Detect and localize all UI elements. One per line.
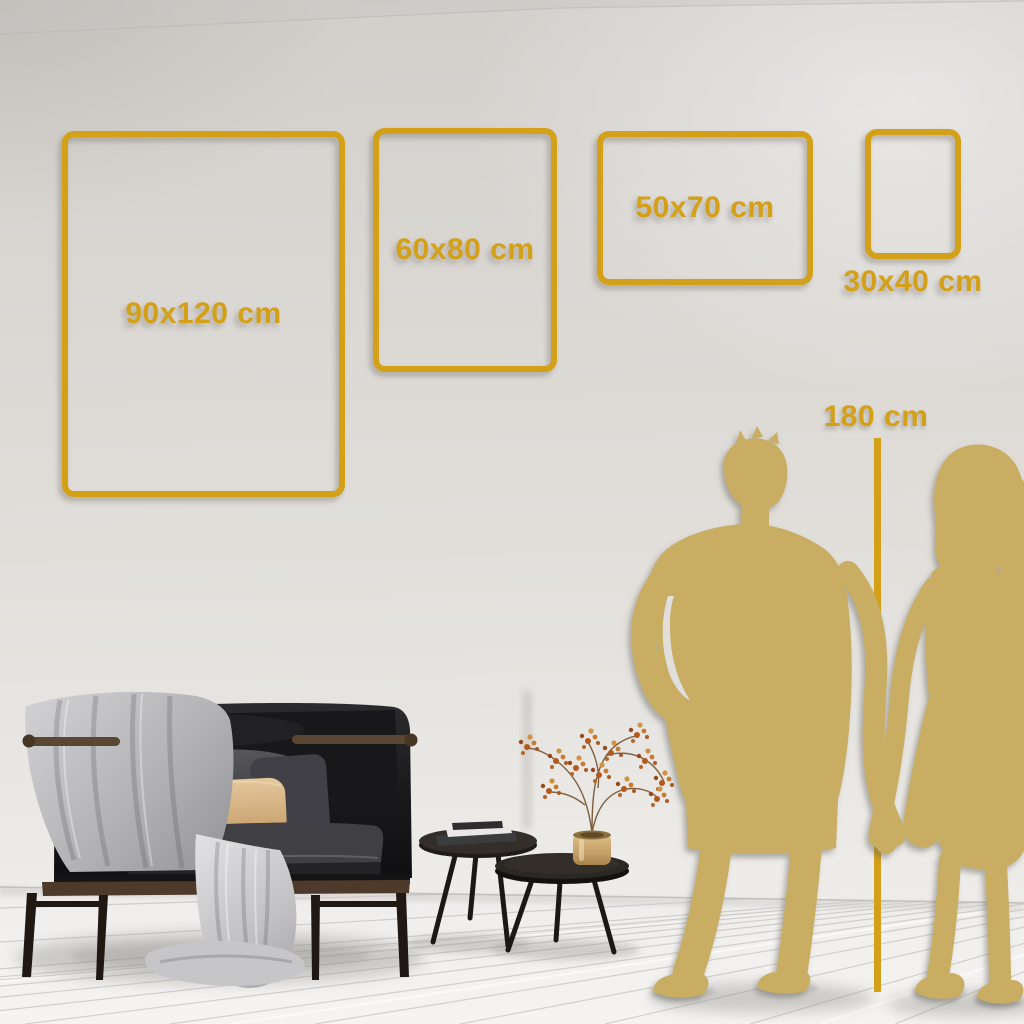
size-frame-60x80: 60x80 cm bbox=[373, 128, 557, 372]
size-frame-90x120: 90x120 cm bbox=[62, 131, 345, 497]
size-label-50x70: 50x70 cm bbox=[635, 191, 774, 225]
size-label-30x40: 30x40 cm bbox=[843, 265, 982, 299]
wall-shadow bbox=[523, 690, 531, 830]
size-label-90x120: 90x120 cm bbox=[125, 297, 281, 331]
size-frame-30x40: 30x40 cm bbox=[865, 129, 961, 259]
height-marker-label: 180 cm bbox=[796, 400, 956, 434]
vase-plant bbox=[519, 722, 674, 865]
ceiling-line bbox=[0, 0, 1024, 34]
size-guide-stage: 90x120 cm 60x80 cm 50x70 cm 30x40 cm 180… bbox=[0, 0, 1024, 1024]
size-label-60x80: 60x80 cm bbox=[395, 233, 534, 267]
size-frame-50x70: 50x70 cm bbox=[597, 131, 813, 285]
